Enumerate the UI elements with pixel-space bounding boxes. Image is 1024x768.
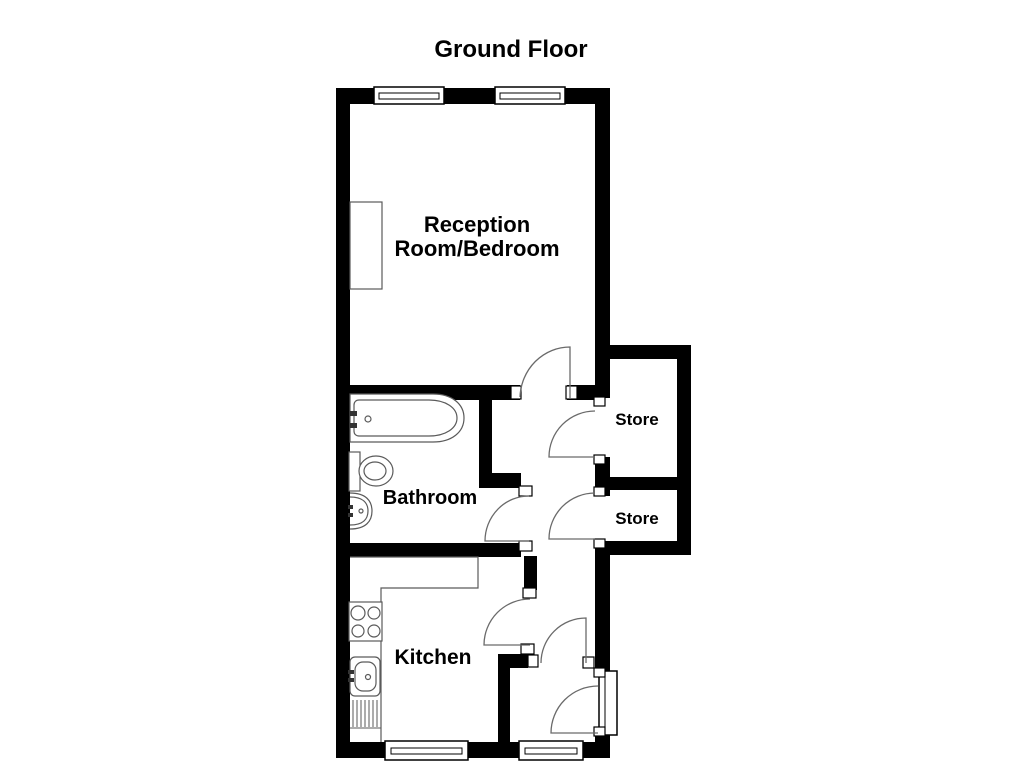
chimney-breast	[350, 202, 382, 289]
wall-exterior-right-corner	[595, 735, 610, 758]
window-bottom-left	[385, 741, 468, 760]
page-title: Ground Floor	[434, 36, 587, 63]
front-door-frame-rect	[599, 671, 617, 735]
wall-store-extension-right	[677, 345, 691, 555]
basin-tap	[348, 513, 353, 517]
page-background	[0, 0, 1024, 768]
jamb	[594, 539, 605, 548]
floor-plan: Ground Floor Reception Room/Bedroom Stor…	[0, 0, 1024, 768]
room-label-reception-1: Reception	[424, 212, 530, 237]
jamb	[594, 668, 605, 677]
window-glazing	[500, 93, 560, 99]
toilet-cistern	[349, 452, 360, 491]
floor-plan-page: Ground Floor Reception Room/Bedroom Stor…	[0, 0, 1024, 768]
sink-tap	[348, 678, 354, 682]
bathtub-icon	[350, 394, 464, 442]
jamb	[519, 541, 532, 551]
wall-bathroom-stub	[479, 473, 521, 488]
room-label-reception-2: Room/Bedroom	[395, 236, 560, 261]
wall-bathroom-bottom	[350, 543, 521, 557]
wall-kitchen-right-upper	[524, 556, 537, 590]
room-label-bathroom: Bathroom	[383, 487, 477, 509]
jamb	[583, 657, 594, 668]
front-door-frame	[599, 671, 617, 735]
bathtub-tap	[350, 423, 357, 428]
bathtub-tap	[350, 411, 357, 416]
wall-store-extension-top	[595, 345, 691, 359]
room-label-store-lower: Store	[615, 509, 658, 528]
window-top-right	[495, 87, 565, 104]
jamb	[523, 588, 536, 598]
hob-icon	[349, 602, 382, 641]
window-bottom-right	[519, 741, 583, 760]
window-glazing	[391, 748, 462, 754]
jamb	[594, 487, 605, 496]
wall-exterior-left	[336, 88, 350, 758]
wall-kitchen-right-lower	[498, 654, 510, 742]
bathtub-outline	[350, 394, 464, 442]
jamb	[566, 386, 577, 399]
jamb	[594, 397, 605, 406]
room-label-kitchen: Kitchen	[394, 646, 471, 669]
jamb	[528, 655, 538, 667]
window-glazing	[379, 93, 439, 99]
window-glazing	[525, 748, 577, 754]
sink-tap	[348, 670, 354, 674]
room-label-store-upper: Store	[615, 410, 658, 429]
jamb	[511, 386, 521, 399]
jamb	[594, 455, 605, 464]
wall-bathroom-right	[479, 400, 492, 477]
jamb	[594, 727, 605, 736]
wall-exterior-right-lower	[595, 541, 610, 672]
window-top-left	[374, 87, 444, 104]
jamb	[519, 486, 532, 496]
basin-tap	[348, 505, 353, 509]
